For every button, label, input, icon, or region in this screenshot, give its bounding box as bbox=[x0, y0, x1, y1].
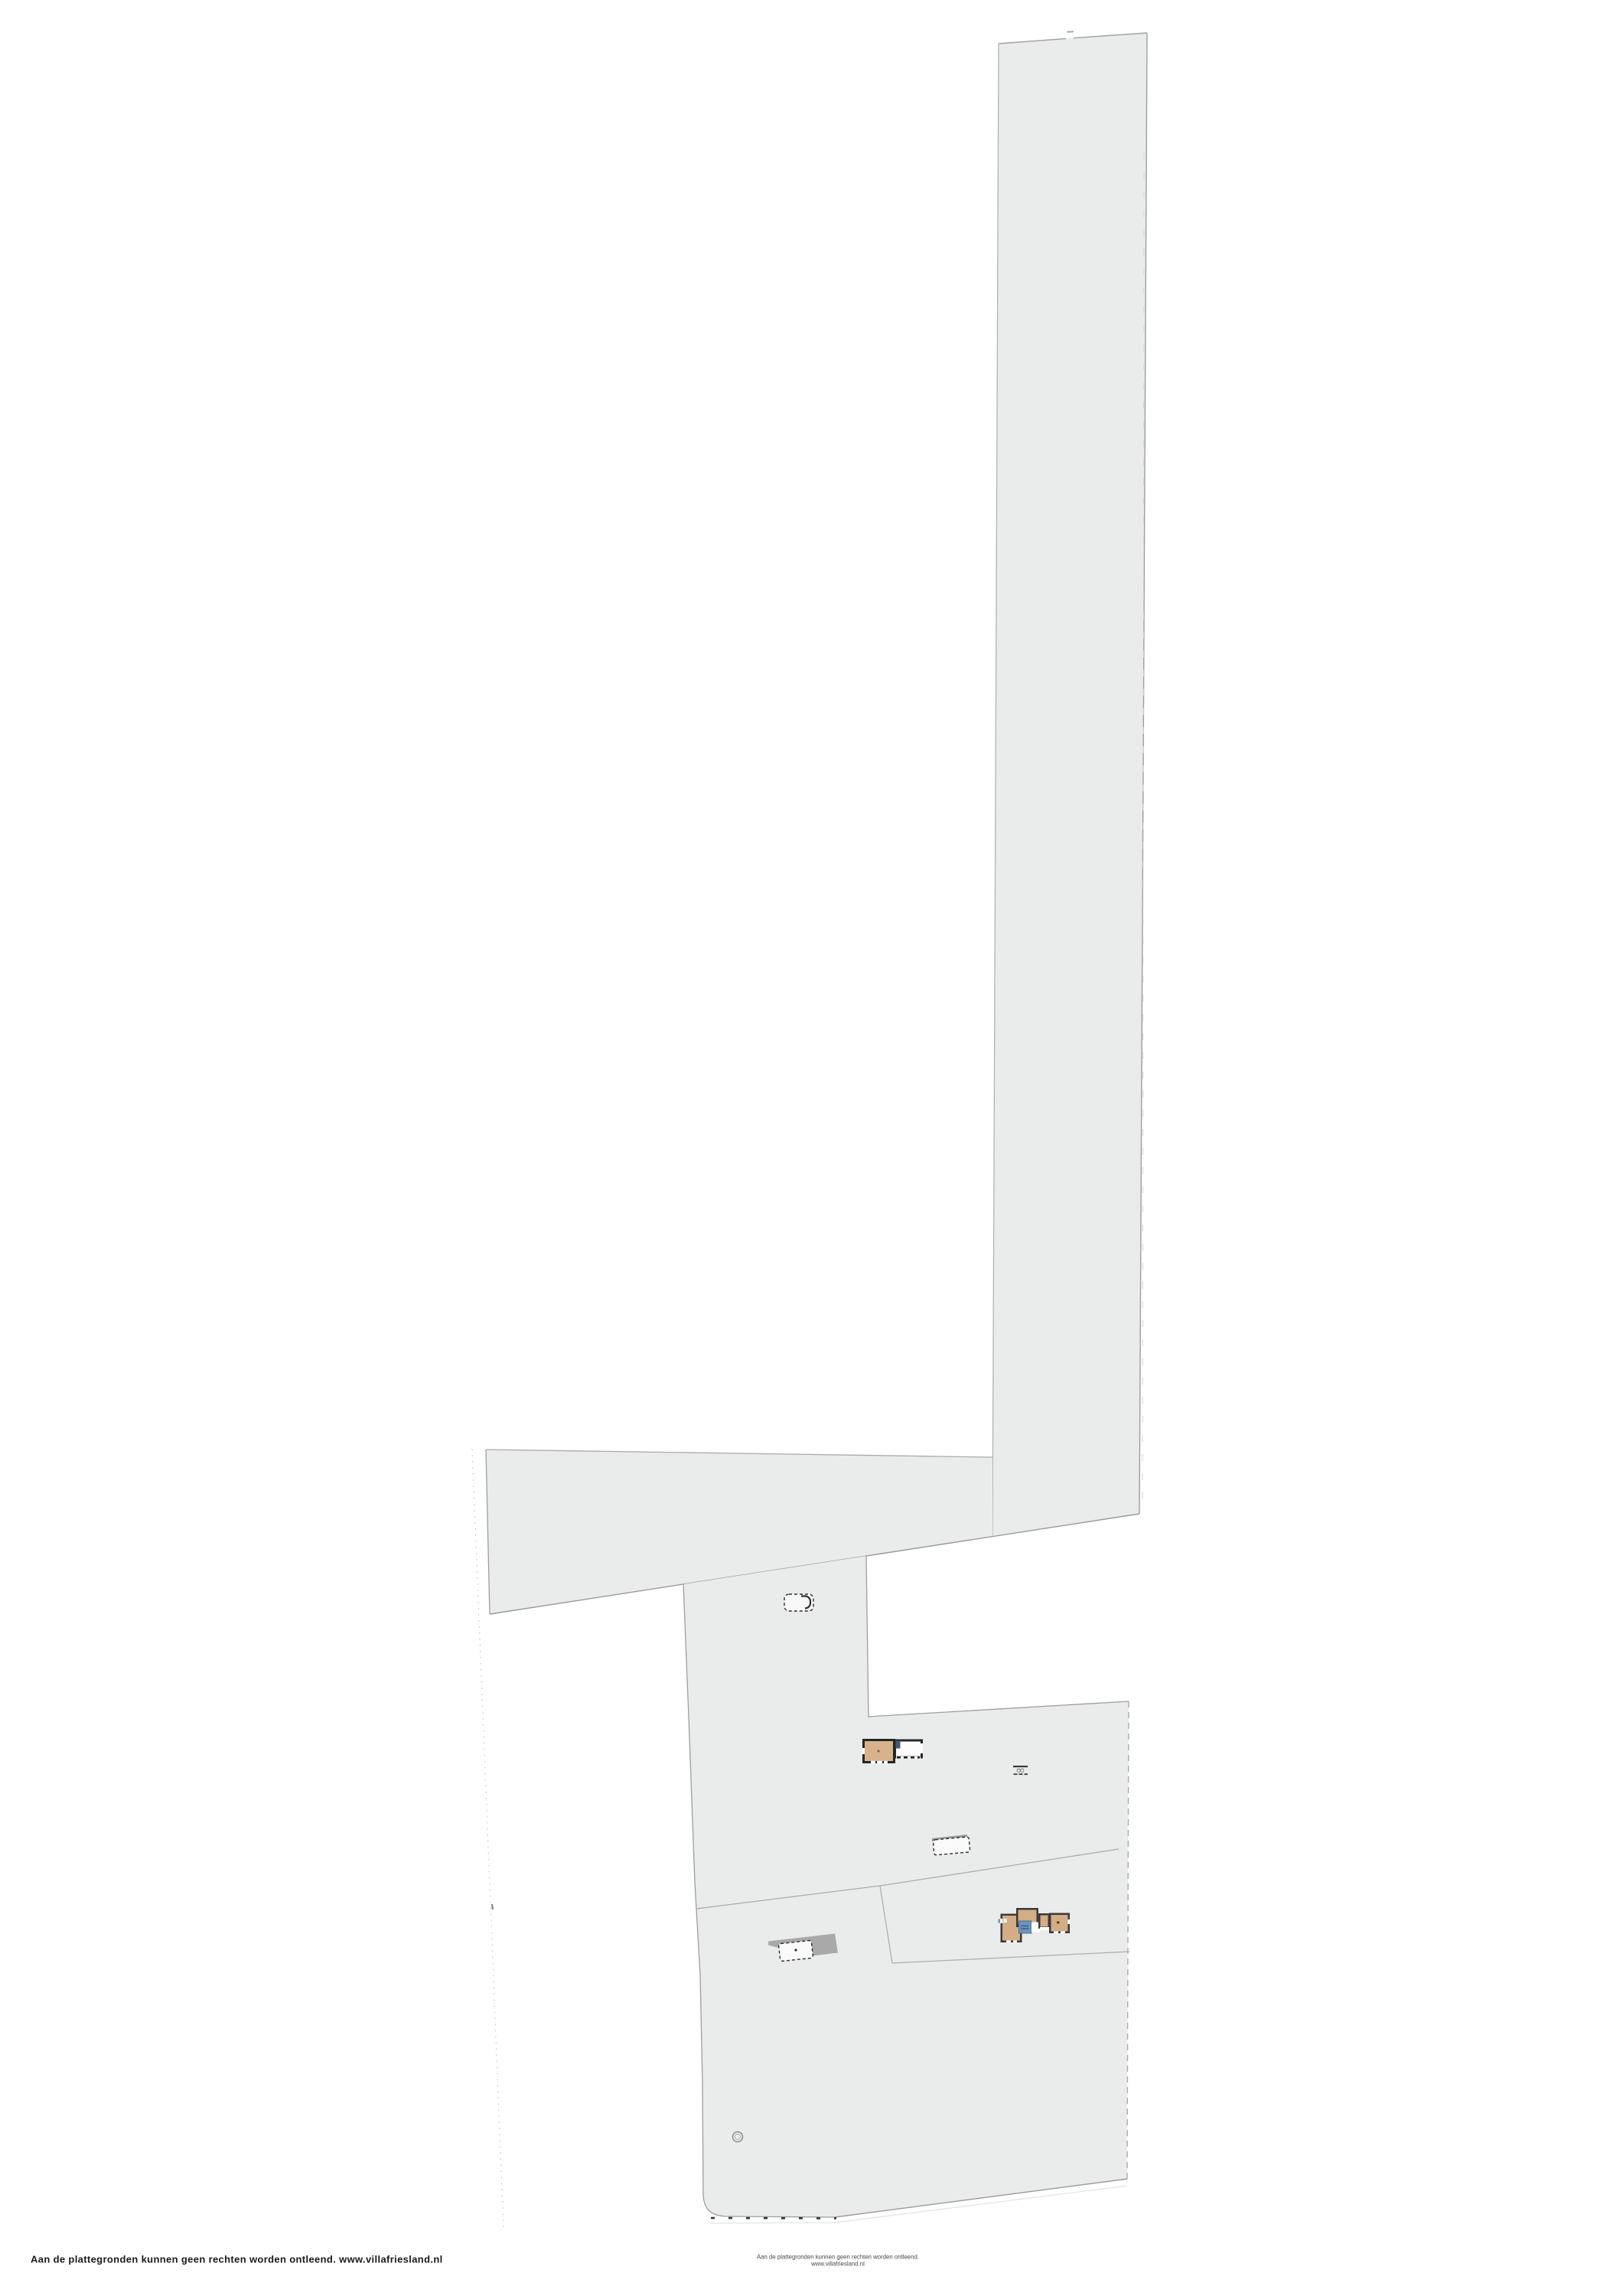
svg-text:Aan de plattegronden kunnen ge: Aan de plattegronden kunnen geen rechten… bbox=[757, 2254, 919, 2261]
svg-text:Aan de plattegronden kunnen ge: Aan de plattegronden kunnen geen rechten… bbox=[31, 2254, 443, 2265]
svg-text:www.villafriesland.nl: www.villafriesland.nl bbox=[810, 2261, 865, 2268]
